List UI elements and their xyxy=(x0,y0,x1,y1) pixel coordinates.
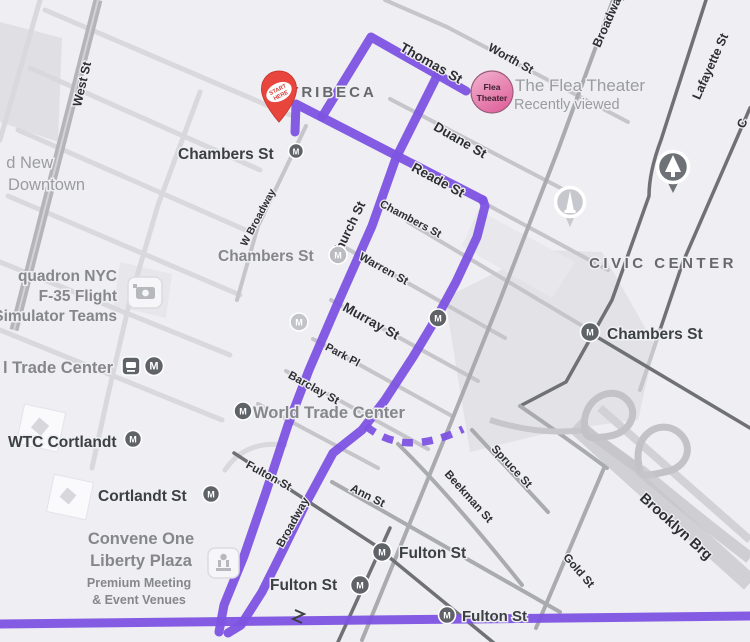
mta-icon-city-hall[interactable]: M xyxy=(429,309,447,327)
flea-badge-line2: Theater xyxy=(477,93,508,103)
svg-text:M: M xyxy=(378,548,386,558)
fulton-station-west-label[interactable]: Fulton St xyxy=(270,577,337,594)
svg-text:M: M xyxy=(586,328,594,338)
civic-center-area-label: CIVIC CENTER xyxy=(589,255,737,272)
map-svg[interactable]: West St Worth St Thomas St Duane St Read… xyxy=(0,0,750,642)
map-canvas[interactable]: West St Worth St Thomas St Duane St Read… xyxy=(0,0,750,642)
svg-text:M: M xyxy=(149,361,158,373)
wtc-cortlandt-label[interactable]: WTC Cortlandt xyxy=(8,434,116,451)
svg-text:M: M xyxy=(293,148,300,157)
cortlandt-st-label[interactable]: Cortlandt St xyxy=(98,488,187,505)
mta-icon-fulton-southeast[interactable]: M xyxy=(439,607,456,624)
trade-center-label[interactable]: l Trade Center xyxy=(3,359,114,377)
fulton-station-center-label[interactable]: Fulton St xyxy=(399,545,466,562)
squadron-label-line3: Simulator Teams xyxy=(0,308,117,325)
svg-text:M: M xyxy=(129,435,137,445)
svg-text:M: M xyxy=(239,407,247,417)
mta-icon-fulton-west[interactable]: M xyxy=(351,576,370,595)
flea-theater-marker[interactable]: Flea Theater xyxy=(471,71,513,113)
mta-icon-chambers-west[interactable]: M xyxy=(289,144,304,159)
flea-theater-subtitle: Recently viewed xyxy=(514,97,620,113)
svg-text:M: M xyxy=(443,611,451,621)
downtown-label-line1: d New xyxy=(6,154,53,172)
downtown-label-line2: Downtown xyxy=(8,176,85,194)
path-icon-wtc[interactable] xyxy=(122,357,140,375)
svg-text:M: M xyxy=(356,581,364,591)
chambers-station-mid-label[interactable]: Chambers St xyxy=(218,248,314,265)
mta-icon-trade-center[interactable]: M xyxy=(145,357,164,376)
mta-icon-chambers-mid[interactable]: M xyxy=(329,246,347,264)
tribeca-area-label: TRIBECA xyxy=(289,84,377,101)
mta-icon-wtc-cortlandt[interactable]: M xyxy=(125,431,142,448)
world-trade-center-label[interactable]: World Trade Center xyxy=(253,404,405,422)
squadron-label-line1[interactable]: quadron NYC xyxy=(18,268,117,285)
mta-icon-chambers-east[interactable]: M xyxy=(581,323,600,342)
convene-label-line2: Liberty Plaza xyxy=(90,552,193,570)
svg-text:M: M xyxy=(295,318,303,328)
svg-text:M: M xyxy=(207,490,215,500)
svg-text:M: M xyxy=(334,251,342,261)
fulton-station-southeast-label[interactable]: Fulton St xyxy=(462,608,527,625)
flea-badge-line1: Flea xyxy=(483,82,500,92)
convene-label-line1[interactable]: Convene One xyxy=(88,530,194,548)
convene-label-line4: & Event Venues xyxy=(92,593,186,607)
mta-icon-fulton-center[interactable]: M xyxy=(373,543,392,562)
mta-icon-wtc[interactable]: M xyxy=(234,402,252,420)
mta-icon-cortlandt-st[interactable]: M xyxy=(203,486,220,503)
chambers-station-east-label[interactable]: Chambers St xyxy=(607,326,703,343)
flea-theater-title[interactable]: The Flea Theater xyxy=(515,76,645,95)
svg-text:M: M xyxy=(434,314,442,324)
landmark-icon[interactable] xyxy=(208,548,239,578)
photo-icon[interactable] xyxy=(128,277,162,308)
mta-icon-park-pl[interactable]: M xyxy=(290,313,308,331)
chambers-station-west-label[interactable]: Chambers St xyxy=(178,146,274,163)
convene-label-line3: Premium Meeting xyxy=(87,576,191,590)
squadron-label-line2: F-35 Flight xyxy=(39,288,117,305)
